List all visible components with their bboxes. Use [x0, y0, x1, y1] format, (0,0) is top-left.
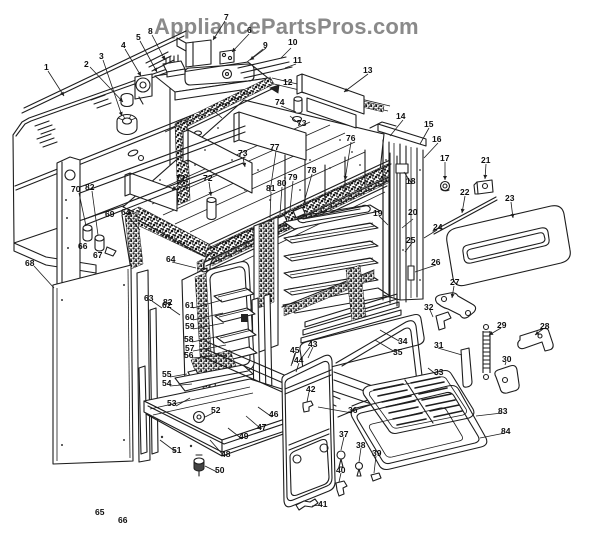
svg-text:16: 16 — [432, 134, 442, 144]
svg-text:48: 48 — [221, 449, 231, 459]
svg-text:64: 64 — [121, 207, 131, 217]
svg-text:73: 73 — [297, 118, 307, 128]
svg-text:28: 28 — [540, 321, 550, 331]
svg-text:6: 6 — [247, 25, 252, 35]
svg-text:25: 25 — [406, 235, 416, 245]
svg-text:83: 83 — [498, 406, 508, 416]
svg-text:74: 74 — [275, 97, 285, 107]
svg-text:66: 66 — [118, 515, 128, 525]
svg-text:14: 14 — [396, 111, 406, 121]
svg-text:34: 34 — [398, 336, 408, 346]
svg-text:19: 19 — [373, 208, 383, 218]
svg-text:59: 59 — [185, 321, 195, 331]
svg-text:38: 38 — [356, 440, 366, 450]
svg-text:21: 21 — [481, 155, 491, 165]
svg-text:53: 53 — [167, 398, 177, 408]
svg-text:65: 65 — [95, 507, 105, 517]
svg-text:71: 71 — [176, 173, 186, 183]
svg-text:57: 57 — [185, 343, 195, 353]
svg-text:47: 47 — [257, 422, 267, 432]
svg-text:13: 13 — [363, 65, 373, 75]
svg-text:69: 69 — [105, 209, 115, 219]
svg-text:70: 70 — [71, 184, 81, 194]
svg-text:78: 78 — [307, 165, 317, 175]
svg-text:3: 3 — [99, 51, 104, 61]
svg-text:12: 12 — [283, 77, 293, 87]
svg-text:66: 66 — [78, 241, 88, 251]
svg-text:51: 51 — [172, 445, 182, 455]
svg-text:20: 20 — [408, 207, 418, 217]
svg-text:30: 30 — [502, 354, 512, 364]
svg-text:63: 63 — [144, 293, 154, 303]
svg-text:55: 55 — [162, 369, 172, 379]
svg-text:1: 1 — [44, 62, 49, 72]
svg-text:11: 11 — [293, 55, 302, 65]
svg-text:76: 76 — [346, 133, 356, 143]
svg-text:8: 8 — [148, 26, 153, 36]
svg-text:82: 82 — [85, 182, 95, 192]
svg-text:67: 67 — [93, 250, 103, 260]
svg-text:35: 35 — [393, 347, 403, 357]
svg-text:7: 7 — [224, 12, 229, 22]
svg-text:40: 40 — [336, 465, 346, 475]
svg-text:42: 42 — [306, 384, 316, 394]
svg-text:15: 15 — [424, 119, 434, 129]
svg-text:2: 2 — [84, 59, 89, 69]
svg-text:60: 60 — [185, 312, 195, 322]
svg-text:50: 50 — [215, 465, 225, 475]
svg-text:77: 77 — [270, 142, 280, 152]
svg-text:37: 37 — [339, 429, 349, 439]
svg-text:61: 61 — [185, 300, 195, 310]
svg-text:72: 72 — [203, 173, 213, 183]
svg-text:33: 33 — [434, 367, 444, 377]
svg-text:79: 79 — [288, 172, 298, 182]
svg-text:64: 64 — [166, 254, 176, 264]
svg-text:18: 18 — [406, 176, 416, 186]
svg-text:9: 9 — [263, 40, 268, 50]
svg-text:45: 45 — [290, 345, 300, 355]
svg-text:4: 4 — [121, 40, 126, 50]
svg-text:54: 54 — [162, 378, 172, 388]
svg-text:46: 46 — [269, 409, 279, 419]
svg-text:43: 43 — [308, 339, 318, 349]
svg-text:31: 31 — [434, 340, 444, 350]
svg-text:52: 52 — [211, 405, 221, 415]
svg-text:84: 84 — [501, 426, 511, 436]
svg-text:68: 68 — [25, 258, 35, 268]
svg-text:80: 80 — [277, 178, 287, 188]
svg-text:73: 73 — [238, 148, 248, 158]
svg-text:32: 32 — [424, 302, 434, 312]
svg-text:26: 26 — [431, 257, 441, 267]
svg-text:17: 17 — [440, 153, 450, 163]
svg-text:36: 36 — [348, 405, 358, 415]
svg-text:AppliancePartsPros.com: AppliancePartsPros.com — [154, 14, 419, 39]
svg-text:41: 41 — [318, 499, 328, 509]
svg-text:82: 82 — [163, 297, 173, 307]
svg-text:39: 39 — [372, 448, 382, 458]
svg-text:24: 24 — [433, 222, 443, 232]
svg-text:23: 23 — [505, 193, 515, 203]
svg-text:27: 27 — [450, 277, 460, 287]
svg-text:10: 10 — [288, 37, 298, 47]
svg-text:29: 29 — [497, 320, 507, 330]
svg-text:49: 49 — [239, 431, 249, 441]
svg-text:44: 44 — [294, 355, 304, 365]
svg-text:81: 81 — [266, 183, 276, 193]
svg-text:58: 58 — [184, 334, 194, 344]
svg-text:22: 22 — [460, 187, 470, 197]
svg-text:5: 5 — [136, 32, 141, 42]
